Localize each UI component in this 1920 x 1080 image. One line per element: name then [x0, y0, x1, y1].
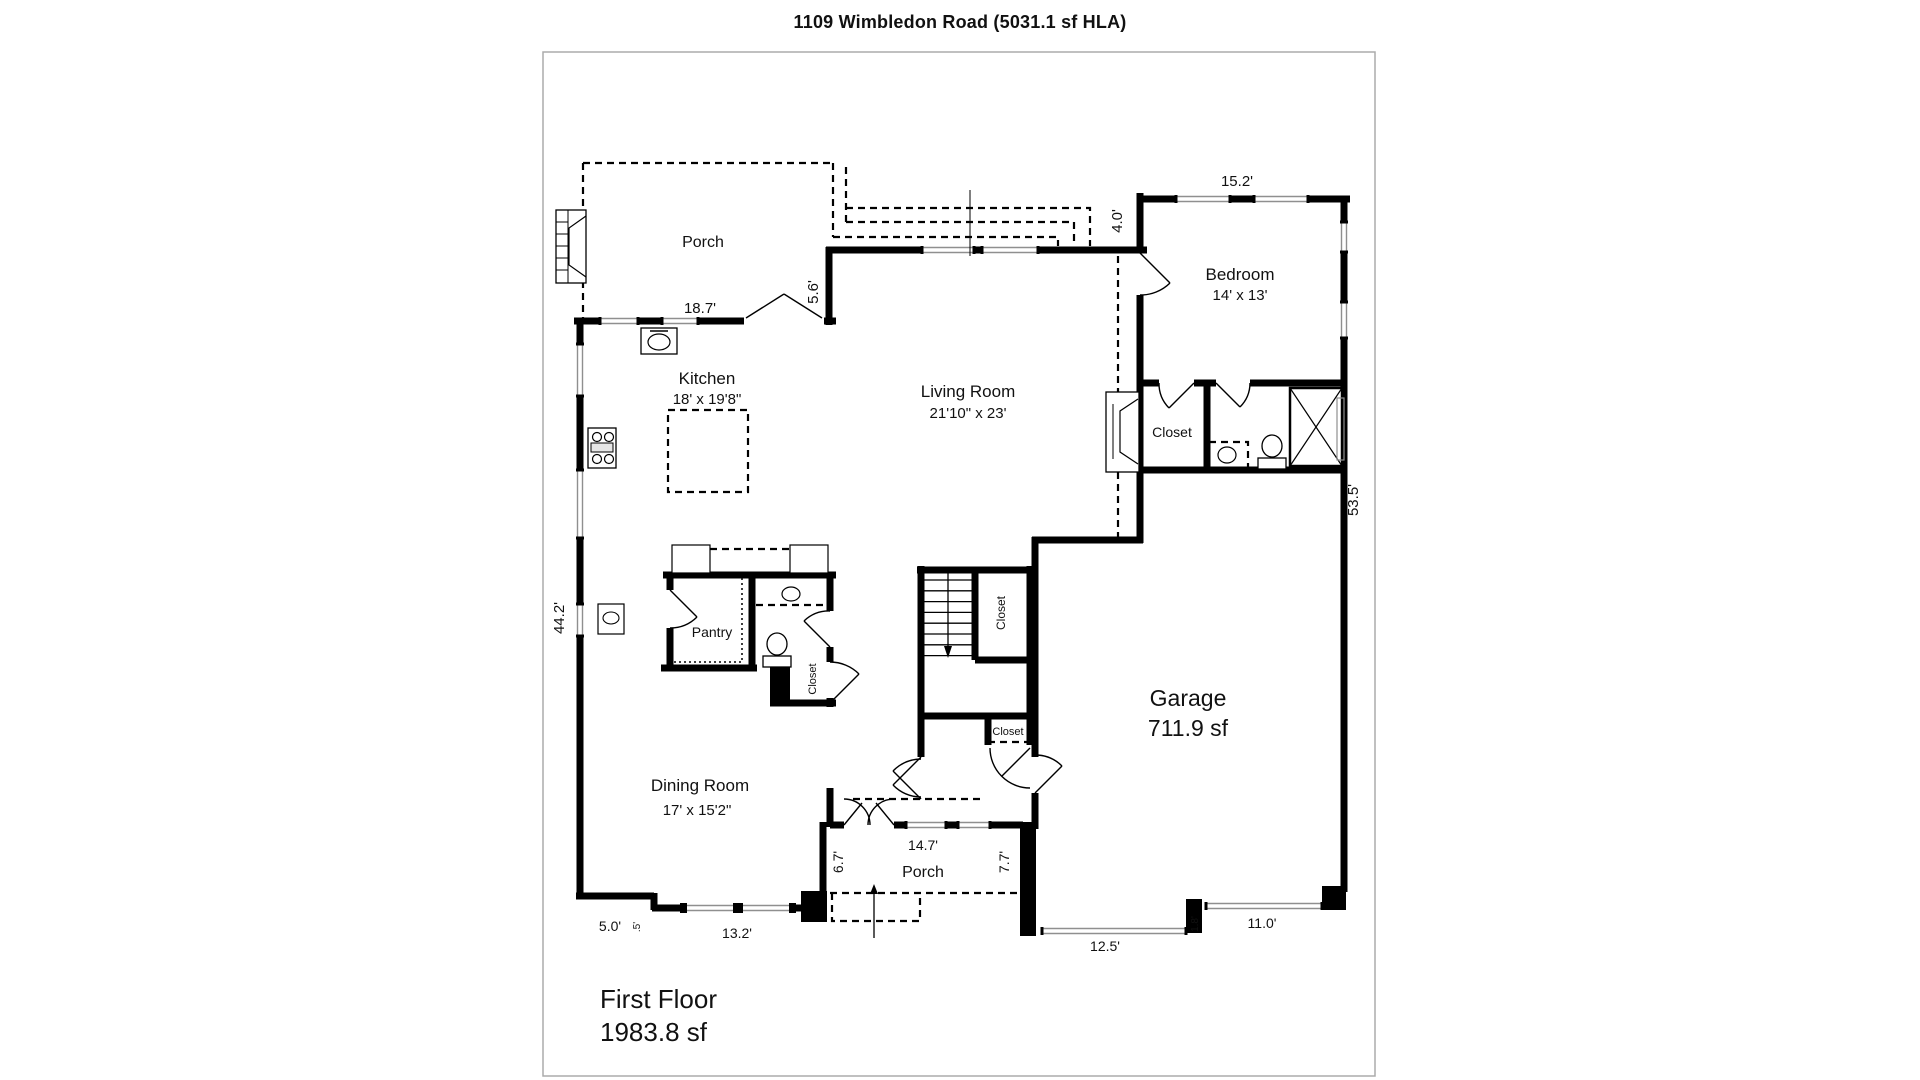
floor-plan-drawing: Porch Kitchen 18' x 19'8" Living Room 21…: [0, 0, 1920, 1080]
floor-area: 1983.8 sf: [600, 1017, 708, 1047]
window-cap: [905, 821, 908, 829]
floor-name: First Floor: [600, 984, 717, 1014]
room-label-hall-closet: Closet: [992, 726, 1023, 738]
dim-front-porch-width: 14.7': [908, 837, 938, 853]
door-leaf: [1002, 748, 1030, 776]
room-label-bedroom-closet: Closet: [1152, 424, 1192, 440]
window-cap: [1205, 902, 1208, 910]
window-cap: [1229, 195, 1232, 203]
window-cap: [1037, 246, 1040, 254]
door-arc: [1159, 383, 1169, 408]
dim-bottom-left-width: 5.0': [599, 918, 621, 934]
room-label-pantry: Pantry: [692, 624, 732, 640]
room-area-garage: 711.9 sf: [1148, 715, 1229, 741]
door-arc: [804, 611, 830, 621]
window-cap: [1340, 221, 1348, 224]
dim-right-side-depth: 53.5': [1345, 484, 1362, 516]
dim-garage-front-jog: 1.8': [1190, 916, 1201, 932]
dim-dining-bay-width: 13.2': [722, 925, 752, 941]
door-leaf: [1035, 766, 1062, 793]
room-label-porch-top: Porch: [682, 234, 724, 251]
room-label-living-room: Living Room: [921, 382, 1016, 401]
powder-toilet-bowl: [767, 633, 787, 655]
door-leaf: [844, 803, 862, 825]
dim-kitchen-top-width: 18.7': [684, 300, 716, 317]
roof-eave-dashed: [833, 237, 1058, 246]
door-arc: [830, 662, 859, 674]
window-cap: [1185, 927, 1188, 935]
window-cap: [1321, 902, 1324, 910]
powder-sink-icon: [782, 587, 800, 601]
room-label-dining-room: Dining Room: [651, 776, 749, 795]
window-cap: [1340, 337, 1348, 340]
window-cap: [599, 317, 602, 325]
closet-wall-block: [770, 664, 790, 704]
dim-kitchen-living-jog: 5.6': [805, 280, 822, 304]
dim-front-porch-right: 7.7': [996, 851, 1012, 873]
window-cap: [1253, 195, 1256, 203]
living-room-fireplace-icon: [1106, 392, 1139, 472]
room-dims-bedroom: 14' x 13': [1213, 287, 1268, 304]
powder-toilet-tank: [763, 656, 791, 667]
butler-sink-icon: [598, 604, 624, 634]
floor-plan-page: 1109 Wimbledon Road (5031.1 sf HLA) Porc…: [0, 0, 1920, 1080]
window-cap: [576, 469, 584, 472]
stoop-outline-dashed: [832, 893, 920, 921]
window-cap: [945, 821, 948, 829]
window-cap: [576, 635, 584, 638]
room-dims-kitchen: 18' x 19'8": [673, 391, 742, 408]
cabinet-icon: [672, 545, 710, 573]
room-label-porch-bottom: Porch: [902, 864, 944, 881]
window-cap: [637, 317, 640, 325]
cabinet-icon: [790, 545, 828, 573]
room-label-kitchen: Kitchen: [679, 369, 736, 388]
door-leaf: [804, 621, 830, 647]
window-cap: [576, 537, 584, 540]
window-mullion: [789, 903, 796, 913]
walkway-arrow-head: [870, 884, 878, 894]
window-cap: [1175, 195, 1178, 203]
window-cap: [576, 343, 584, 346]
dim-left-side-depth: 44.2': [551, 602, 568, 634]
window-cap: [989, 821, 992, 829]
door-leaf: [670, 590, 697, 617]
window-cap: [1340, 251, 1348, 254]
window-mullion: [680, 903, 687, 913]
dining-bay-corner-wall: [801, 891, 827, 922]
door-arc: [1035, 755, 1062, 766]
window-cap: [661, 317, 664, 325]
stove-control-panel: [591, 443, 613, 452]
dim-garage-door-right: 11.0': [1248, 915, 1277, 931]
dim-bedroom-top-width: 15.2': [1221, 173, 1253, 190]
room-dims-living-room: 21'10" x 23': [930, 405, 1007, 422]
door-leaf: [830, 674, 859, 703]
door-arc: [1140, 283, 1170, 295]
window-cap: [576, 603, 584, 606]
window-cap: [921, 246, 924, 254]
window-cap: [973, 246, 976, 254]
dim-garage-door-left: 12.5': [1090, 938, 1120, 954]
window-cap: [1041, 927, 1044, 935]
window-cap: [957, 821, 960, 829]
bath-toilet-tank: [1258, 458, 1286, 469]
room-dims-dining-room: 17' x 15'2": [663, 802, 732, 819]
room-label-powder-closet: Closet: [807, 663, 819, 694]
room-label-garage: Garage: [1150, 685, 1227, 711]
bath-sink-icon: [1218, 447, 1236, 463]
window-cap: [981, 246, 984, 254]
window-cap: [1340, 301, 1348, 304]
bath-toilet-bowl: [1262, 435, 1282, 457]
roof-eave-dashed: [846, 222, 1074, 246]
window-cap: [697, 317, 700, 325]
dim-bottom-left-jog: .5': [632, 922, 643, 932]
porch-right-post: [1020, 822, 1036, 936]
door-leaf: [1216, 383, 1240, 407]
garage-corner-wall: [1322, 886, 1346, 910]
room-label-stairs-closet: Closet: [994, 595, 1008, 630]
dim-bedroom-living-jog: 4.0': [1109, 209, 1126, 233]
window-cap: [1307, 195, 1310, 203]
kitchen-island-dashed: [668, 410, 748, 492]
door-leaf: [1140, 253, 1170, 283]
window-mullion: [733, 903, 743, 913]
door-leaf: [746, 294, 784, 318]
door-leaf: [1169, 383, 1194, 408]
roof-eave-dashed: [846, 208, 1090, 246]
window-cap: [576, 395, 584, 398]
door-arc: [1240, 383, 1250, 407]
room-label-bedroom: Bedroom: [1206, 265, 1275, 284]
dim-front-porch-left: 6.7': [830, 851, 846, 873]
door-leaf: [876, 803, 894, 825]
